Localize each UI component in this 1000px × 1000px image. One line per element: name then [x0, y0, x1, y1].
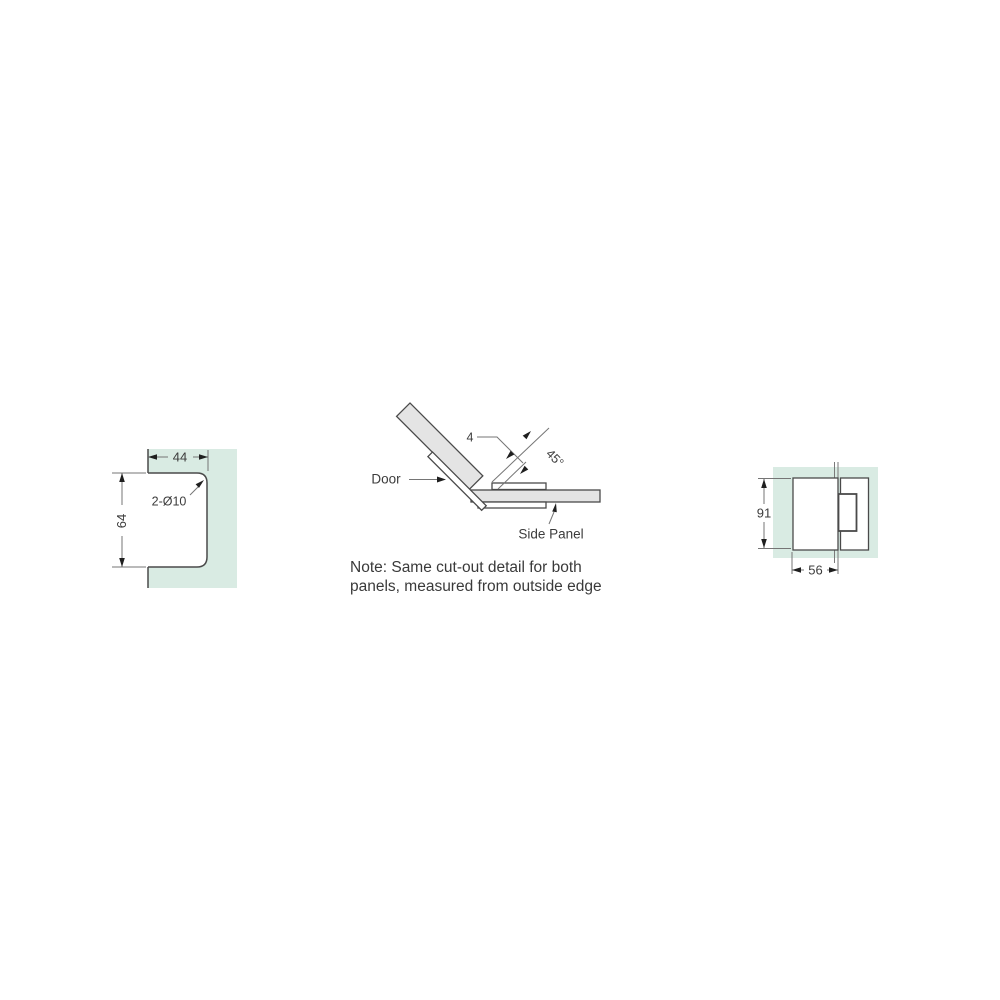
side-panel-glass	[471, 490, 600, 502]
technical-drawing-sheet: 44 64 2-Ø10	[0, 0, 1000, 1000]
side-panel-edge-strip-bottom	[478, 502, 546, 508]
figure-cutout-panel: 44 64 2-Ø10	[112, 449, 237, 588]
drawing-layer: 44 64 2-Ø10	[0, 0, 1000, 1000]
dimension-4: 4	[467, 431, 531, 464]
dim-56-label: 56	[808, 563, 822, 578]
arrowhead-up-icon	[761, 479, 767, 488]
arrowhead-left-icon	[792, 567, 801, 573]
side-panel-edge-strip-top	[492, 483, 546, 490]
arrowhead-down-icon	[119, 558, 125, 567]
arrowhead-right-icon	[829, 567, 838, 573]
reference-line-45	[492, 428, 549, 482]
dim-91-label: 91	[757, 506, 771, 521]
gap-arrowhead-ne-icon	[523, 431, 531, 439]
dim-4-label: 4	[467, 431, 474, 445]
hole-callout: 2-Ø10	[152, 480, 204, 509]
door-glass	[397, 403, 483, 489]
hinge-plate-left	[793, 478, 838, 550]
side-panel-label: Side Panel	[518, 527, 583, 542]
dim-45deg-label: 45°	[543, 447, 566, 470]
side-panel-callout: Side Panel	[518, 503, 583, 542]
hinge-clamp-detail	[839, 494, 857, 531]
figure-corner-detail: 4 45° Door Side Panel Note: Same cut-out…	[350, 403, 602, 595]
hole-callout-label: 2-Ø10	[152, 495, 187, 509]
dimension-45deg: 45°	[520, 447, 566, 474]
leader-arrowhead-icon	[196, 480, 204, 488]
side-panel-arrowhead-icon	[552, 503, 557, 512]
note-block: Note: Same cut-out detail for both panel…	[350, 559, 602, 595]
figure-hinge-view: 91 56	[757, 462, 878, 578]
dimension-64: 64	[112, 473, 146, 567]
arrowhead-up-icon	[119, 473, 125, 482]
door-callout: Door	[371, 472, 446, 487]
note-line2: panels, measured from outside edge	[350, 578, 602, 595]
dim-64-label: 64	[114, 514, 129, 528]
door-label: Door	[371, 472, 401, 487]
gap-arrowhead-sw-icon	[506, 451, 514, 459]
door-arrowhead-icon	[437, 477, 446, 483]
dim-44-label: 44	[173, 450, 187, 465]
note-line1: Note: Same cut-out detail for both	[350, 559, 582, 576]
arrowhead-down-icon	[761, 539, 767, 548]
